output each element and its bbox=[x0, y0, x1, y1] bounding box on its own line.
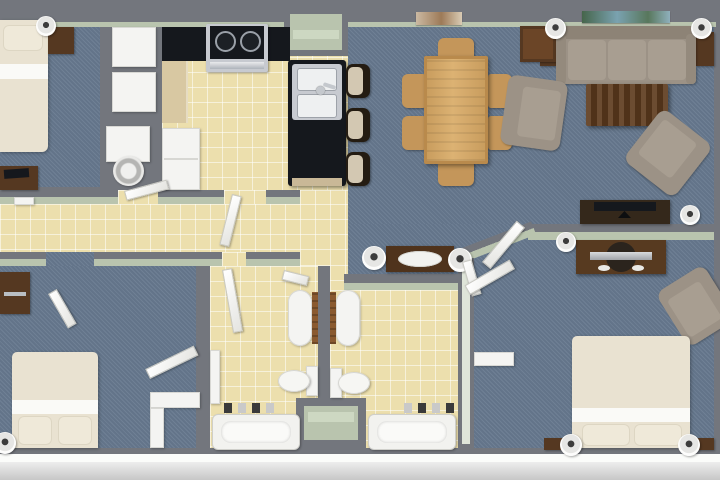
tub-faucet bbox=[266, 403, 274, 413]
dining-table bbox=[424, 56, 488, 164]
bar-stool bbox=[346, 152, 370, 186]
tub-faucet bbox=[404, 403, 412, 413]
pillow bbox=[634, 424, 682, 446]
hall-bottom-wall-face bbox=[206, 259, 222, 266]
sofa-cushion bbox=[648, 40, 686, 80]
bed bbox=[572, 336, 690, 448]
tub-faucet bbox=[432, 403, 440, 413]
tv-console bbox=[580, 200, 670, 224]
television bbox=[4, 168, 30, 179]
bathroom-2-north-wall bbox=[344, 274, 458, 290]
table-lamp bbox=[560, 434, 582, 456]
dining-chair bbox=[402, 74, 426, 108]
pantry-shelf bbox=[293, 30, 339, 39]
dining-chair bbox=[438, 162, 474, 186]
dining-chair bbox=[402, 116, 426, 150]
dresser bbox=[0, 166, 38, 190]
dresser-detail bbox=[4, 292, 26, 296]
sink-basin bbox=[297, 94, 337, 118]
island-base bbox=[292, 178, 342, 186]
sofa-back bbox=[556, 26, 696, 39]
sofa-arm bbox=[556, 34, 566, 84]
hall-bottom-wall-face bbox=[246, 259, 300, 266]
dresser bbox=[0, 272, 30, 314]
drawer-knob bbox=[598, 265, 610, 271]
tub-basin bbox=[377, 421, 447, 443]
washer-door bbox=[113, 156, 144, 186]
bed-sheet-fold bbox=[572, 408, 690, 422]
floor-plan bbox=[0, 0, 720, 480]
bathtub bbox=[212, 414, 300, 450]
linen-closet-shelf bbox=[308, 412, 354, 422]
toilet-bowl bbox=[338, 372, 370, 394]
tv-console bbox=[576, 240, 666, 274]
refrigerator-divider bbox=[164, 158, 198, 160]
bathtub bbox=[368, 414, 456, 450]
bed bbox=[0, 20, 48, 152]
burner bbox=[215, 31, 236, 52]
floor-lamp bbox=[545, 18, 566, 39]
stool-seat bbox=[348, 67, 363, 95]
bar-stool bbox=[346, 108, 370, 142]
table-lamp bbox=[362, 246, 386, 270]
toilet-bowl bbox=[278, 370, 310, 392]
armchair bbox=[499, 74, 568, 152]
doorway-bathroom-1 bbox=[222, 252, 246, 266]
range-stove bbox=[206, 24, 268, 72]
bed bbox=[12, 352, 98, 448]
tub-faucet bbox=[418, 403, 426, 413]
bed-sheet-fold bbox=[0, 64, 48, 79]
closet-shelf bbox=[150, 392, 200, 408]
sofa-cushion bbox=[608, 40, 646, 80]
stool-seat bbox=[348, 155, 363, 183]
doorway-bedroom-2 bbox=[46, 252, 94, 266]
hall-top-wall-face bbox=[158, 197, 224, 204]
hallway-floor bbox=[0, 204, 348, 252]
closet-shelf bbox=[474, 352, 514, 366]
armchair-cushion bbox=[637, 119, 697, 180]
television bbox=[590, 252, 652, 260]
vanity-wood-ledge bbox=[312, 292, 318, 344]
refrigerator bbox=[162, 128, 200, 190]
hall-bottom-wall-face bbox=[94, 259, 206, 266]
console-table bbox=[386, 246, 454, 272]
floor-lamp bbox=[691, 18, 712, 39]
bathroom-counter bbox=[210, 350, 220, 404]
decor-bowl bbox=[398, 251, 442, 267]
burner bbox=[240, 31, 261, 52]
sofa-arm bbox=[686, 34, 696, 84]
table-lamp bbox=[678, 434, 700, 456]
drawer-knob bbox=[632, 265, 644, 271]
table-lamp bbox=[36, 16, 56, 36]
faucet bbox=[316, 86, 325, 95]
hall-bottom-wall-face bbox=[0, 259, 46, 266]
armchair-cushion bbox=[517, 86, 562, 141]
wall-art bbox=[416, 12, 462, 25]
closet-shelf bbox=[112, 27, 156, 67]
kitchen-sink bbox=[292, 64, 342, 120]
closet-shelf bbox=[112, 72, 156, 112]
closet-wall bbox=[150, 408, 164, 448]
tub-faucet bbox=[224, 403, 232, 413]
vanity-sink bbox=[336, 290, 360, 346]
oven-handle bbox=[210, 62, 264, 69]
tub-faucet bbox=[446, 403, 454, 413]
television bbox=[594, 202, 656, 211]
floor-lamp bbox=[556, 232, 576, 252]
tv-stand bbox=[618, 211, 631, 218]
sofa-cushion bbox=[568, 40, 606, 80]
ground-strip bbox=[0, 462, 720, 480]
pillow bbox=[18, 416, 52, 445]
sofa bbox=[556, 26, 696, 84]
tub-faucet bbox=[238, 403, 246, 413]
bar-stool bbox=[346, 64, 370, 98]
toilet bbox=[330, 368, 370, 398]
wall-art bbox=[582, 11, 670, 23]
tub-basin bbox=[221, 421, 291, 443]
pillow bbox=[582, 424, 630, 446]
bed-sheet-fold bbox=[12, 400, 98, 414]
stool-seat bbox=[348, 111, 363, 139]
dining-table-top bbox=[427, 59, 485, 161]
vanity-sink bbox=[288, 290, 312, 346]
tub-faucet bbox=[252, 403, 260, 413]
toilet bbox=[278, 366, 318, 396]
floor-lamp bbox=[680, 205, 700, 225]
wall-frame bbox=[14, 197, 34, 205]
wood-counter bbox=[162, 61, 188, 123]
hall-top-wall-face bbox=[266, 197, 300, 204]
pillow bbox=[58, 416, 92, 445]
